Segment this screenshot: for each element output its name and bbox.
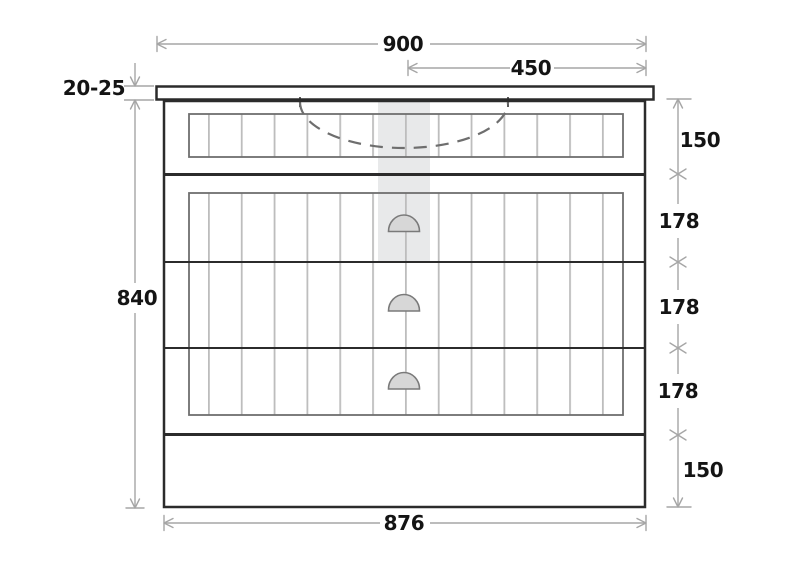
vanity-front-elevation-drawing: 900 450 20-25 840 xyxy=(0,0,791,573)
dim-basin-offset-label: 450 xyxy=(511,56,552,80)
dim-overall-width: 900 xyxy=(157,32,646,56)
dim-cabinet-base-width: 876 xyxy=(164,511,646,535)
dim-countertop-thickness-label: 20-25 xyxy=(63,76,125,100)
drawing-canvas: 900 450 20-25 840 xyxy=(0,0,791,573)
countertop xyxy=(157,87,654,100)
dim-plinth-height-label: 150 xyxy=(683,458,724,482)
dim-right-stack: 150 178 178 178 150 xyxy=(658,99,724,507)
dim-overall-height-label: 840 xyxy=(117,286,158,310)
dim-overall-width-label: 900 xyxy=(383,32,424,56)
dim-countertop-thickness: 20-25 xyxy=(63,63,154,100)
dim-basin-offset: 450 xyxy=(408,56,646,80)
dim-overall-height: 840 xyxy=(117,100,158,508)
dim-drawer-1-height-label: 178 xyxy=(659,209,700,233)
dim-drawer-2-height-label: 178 xyxy=(659,295,700,319)
dim-top-rail-height-label: 150 xyxy=(680,128,721,152)
top-rail-slats xyxy=(189,114,622,157)
dim-drawer-3-height-label: 178 xyxy=(658,379,699,403)
dim-cabinet-base-width-label: 876 xyxy=(384,511,425,535)
